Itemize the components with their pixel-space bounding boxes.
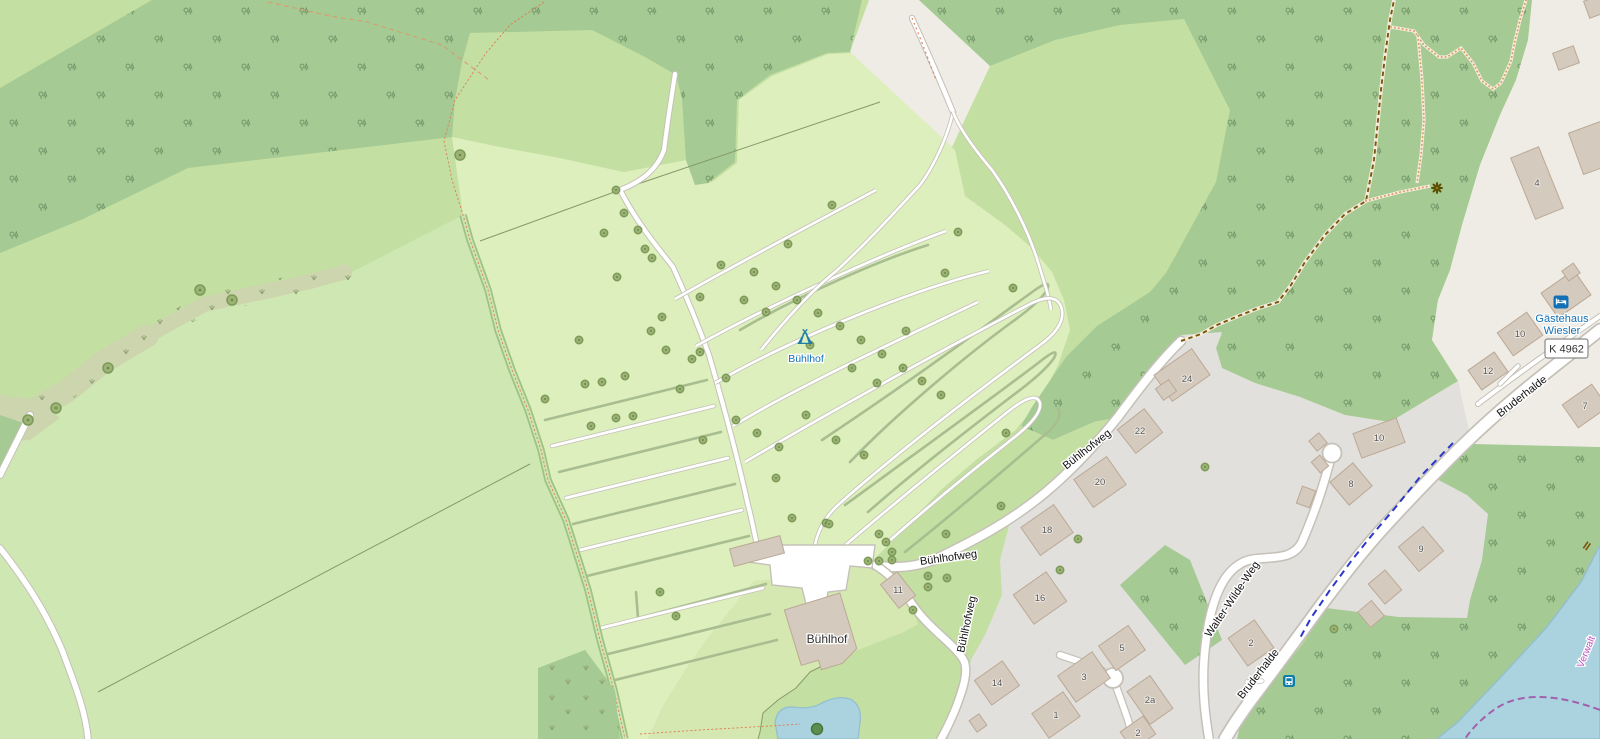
svg-text:16: 16 xyxy=(1035,593,1046,604)
svg-text:2: 2 xyxy=(1135,728,1140,739)
svg-text:10: 10 xyxy=(1515,329,1526,340)
svg-text:4: 4 xyxy=(1534,178,1539,189)
svg-text:2a: 2a xyxy=(1145,695,1156,706)
svg-text:3: 3 xyxy=(1081,672,1086,683)
svg-text:8: 8 xyxy=(1348,479,1353,490)
svg-text:2: 2 xyxy=(1248,638,1253,649)
svg-text:Bühlhof: Bühlhof xyxy=(807,632,848,646)
svg-text:12: 12 xyxy=(1483,366,1494,377)
svg-text:Bühlhof: Bühlhof xyxy=(788,353,824,365)
svg-text:7: 7 xyxy=(1582,401,1587,412)
svg-text:K 4962: K 4962 xyxy=(1549,344,1584,356)
svg-text:9: 9 xyxy=(1418,544,1423,555)
svg-text:Gästehaus: Gästehaus xyxy=(1535,313,1589,325)
svg-text:5: 5 xyxy=(1119,643,1124,654)
svg-text:10: 10 xyxy=(1374,433,1385,444)
svg-text:14: 14 xyxy=(992,678,1003,689)
svg-text:24: 24 xyxy=(1182,374,1193,385)
svg-text:1: 1 xyxy=(1053,710,1058,721)
svg-text:20: 20 xyxy=(1095,477,1106,488)
svg-text:Wiesler: Wiesler xyxy=(1544,325,1581,337)
svg-text:18: 18 xyxy=(1042,525,1053,536)
svg-text:11: 11 xyxy=(893,585,903,596)
svg-text:22: 22 xyxy=(1135,426,1146,437)
